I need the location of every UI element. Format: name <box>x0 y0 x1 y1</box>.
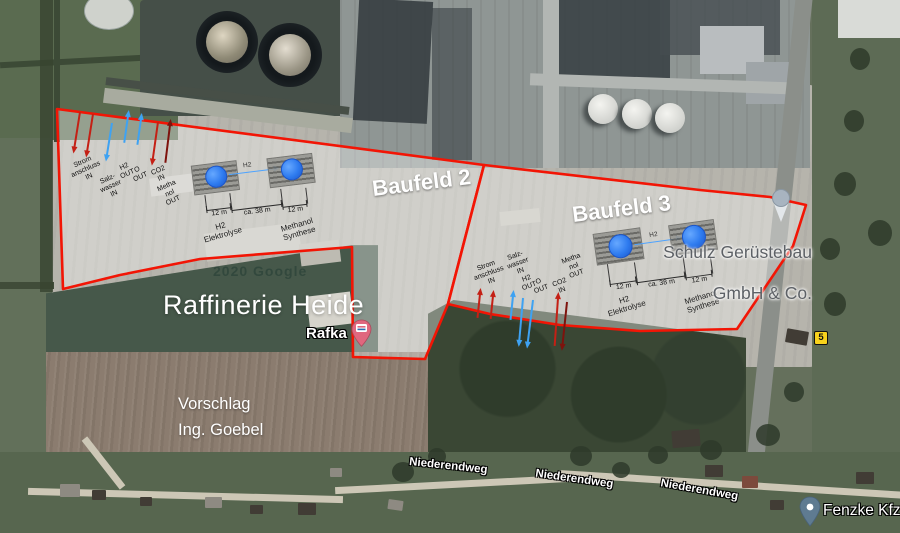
dimension-label: 12 m <box>211 209 227 218</box>
vorschlag-line1: Vorschlag <box>178 392 263 418</box>
dimension-synthesis: 12 m <box>282 204 307 208</box>
schulz-line2: GmbH & Co. <box>636 283 812 304</box>
google-watermark: 2020 Google <box>213 263 307 279</box>
raffinerie-heide-label: Raffinerie Heide <box>163 290 364 321</box>
schulz-line1: Schulz Gerüstebau <box>636 242 812 263</box>
fenzke-pin-icon[interactable] <box>800 497 820 526</box>
vorschlag-note: Vorschlag Ing. Goebel <box>178 392 263 443</box>
plant-diagram-baufeld2: H2 12 m ca. 38 m 12 m H2 Elektrolyse Met… <box>188 143 340 264</box>
schulz-place-label[interactable]: Schulz Gerüstebau GmbH & Co. <box>636 221 812 324</box>
dimension-label: 12 m <box>287 205 303 214</box>
dimension-gap: ca. 38 m <box>231 204 282 211</box>
fenzke-place-label[interactable]: Fenzke Kfz-S <box>823 502 900 520</box>
satellite-map: Strom anschluss IN Salz- wasser IN H2 OU… <box>0 0 900 533</box>
b5-road-badge: 5 <box>814 331 828 345</box>
synthesis-label: Methanol Synthese <box>266 213 330 247</box>
vorschlag-line2: Ing. Goebel <box>178 418 263 444</box>
dimension-electrolysis: 12 m <box>610 280 637 285</box>
rafka-place-label[interactable]: Rafka <box>306 325 347 342</box>
electrolysis-label: H2 Elektrolyse <box>190 214 254 248</box>
dimension-label: 12 m <box>615 282 631 291</box>
dimension-electrolysis: 12 m <box>206 207 231 211</box>
h2-pipe-label: H2 <box>243 161 252 169</box>
